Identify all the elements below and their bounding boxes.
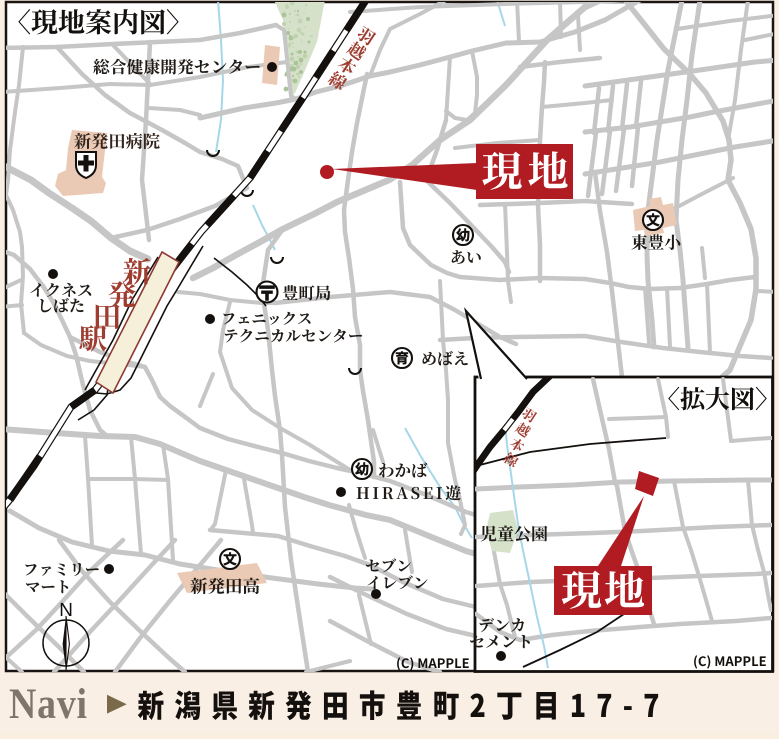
svg-text:Navi: Navi [9, 680, 88, 728]
